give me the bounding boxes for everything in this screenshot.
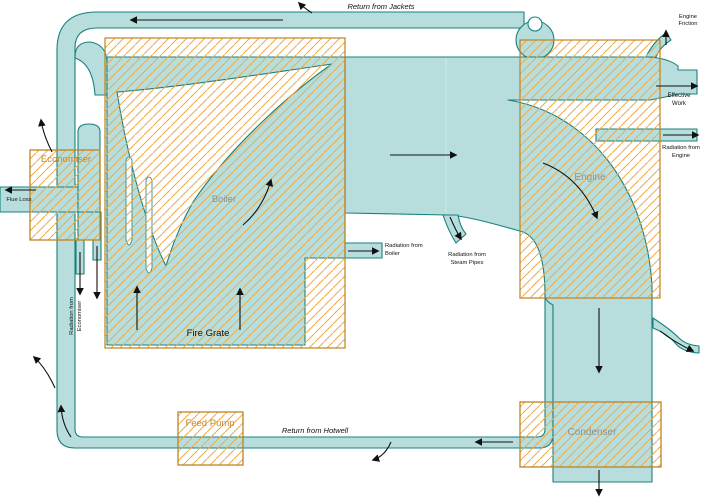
- economiser-label: Economiser: [41, 154, 91, 165]
- flow-condenser-branch: [653, 318, 699, 353]
- radiation-boiler-line1: Radiation from: [385, 243, 423, 249]
- flue-loss-label: Flue Loss: [6, 197, 31, 203]
- radiation-from-boiler-label: Radiation from Boiler: [385, 243, 423, 257]
- effective-work-line2: Work: [672, 101, 687, 107]
- flow-jackets-curl-hole: [528, 17, 542, 31]
- engine-friction-line2: Friction: [678, 21, 697, 27]
- boiler-box: [105, 38, 345, 348]
- condenser-label: Condenser: [568, 427, 618, 438]
- feed-pump-label: Feed Pump: [185, 418, 234, 429]
- boiler-label: Boiler: [212, 194, 236, 205]
- sankey-diagram-stage: Economiser Boiler Fire Grate Engine Cond…: [0, 0, 706, 498]
- effective-work-line1: Effective: [668, 93, 692, 99]
- flow-radiation-steam-pipes-branch: [443, 215, 466, 243]
- engine-label: Engine: [574, 172, 606, 183]
- radiation-engine-line1: Radiation from: [662, 145, 700, 151]
- radiation-economiser-line2: Economiser: [77, 301, 83, 332]
- component-boxes: [30, 38, 661, 467]
- radiation-from-engine-label: Radiation from Engine: [662, 145, 700, 159]
- radiation-boiler-line2: Boiler: [385, 251, 400, 257]
- engine-hatch: [520, 40, 660, 298]
- flow-feed-merge: [75, 42, 107, 95]
- steam-plant-sankey: Economiser Boiler Fire Grate Engine Cond…: [0, 0, 706, 498]
- engine-friction-label: Engine Friction: [678, 14, 697, 27]
- effective-work-label: Effective Work: [668, 93, 692, 107]
- engine-box: [520, 40, 660, 298]
- radiation-from-steam-pipes-label: Radiation from Steam Pipes: [448, 252, 486, 266]
- radiation-engine-line2: Engine: [672, 153, 690, 159]
- fire-grate-label: Fire Grate: [187, 328, 230, 339]
- boiler-hatch: [105, 38, 345, 348]
- economiser-up-arrow: [41, 120, 52, 152]
- radiation-from-economiser-label: Radiation from Economiser: [69, 297, 83, 335]
- left-hook-arrow: [34, 357, 55, 388]
- engine-friction-line1: Engine: [679, 14, 697, 20]
- radiation-economiser-line1: Radiation from: [69, 297, 75, 335]
- radiation-steam-line1: Radiation from: [448, 252, 486, 258]
- radiation-steam-line2: Steam Pipes: [451, 260, 484, 266]
- return-from-jackets-label: Return from Jackets: [347, 2, 414, 11]
- return-from-hotwell-label: Return from Hotwell: [282, 426, 349, 435]
